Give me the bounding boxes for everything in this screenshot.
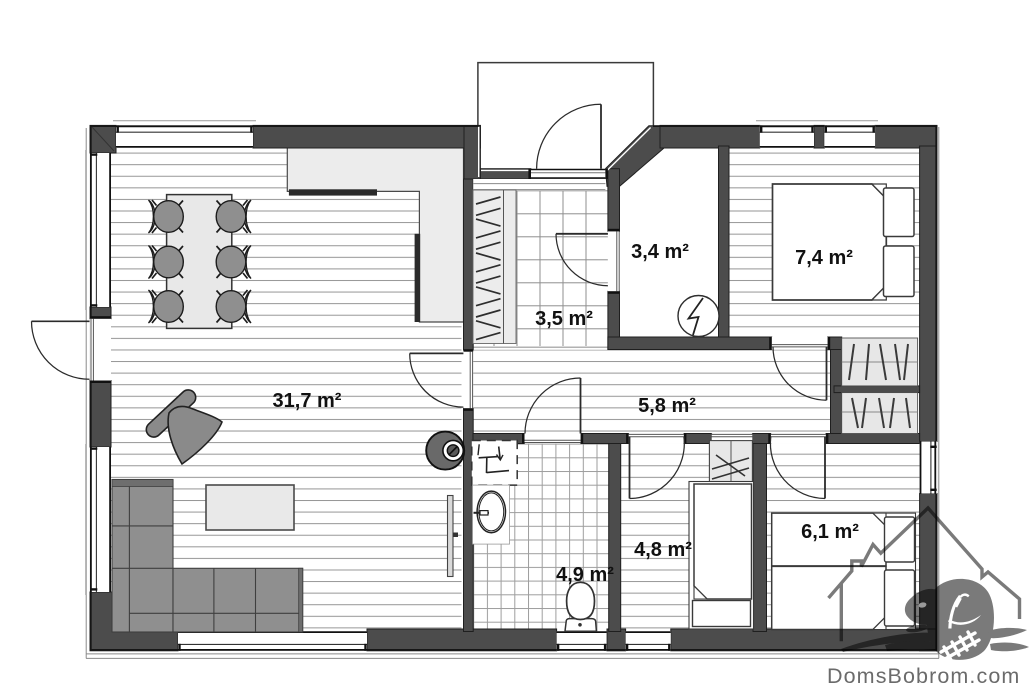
svg-text:4,8 m²: 4,8 m²: [634, 539, 692, 561]
svg-text:4,9 m²: 4,9 m²: [556, 564, 614, 586]
svg-text:3,5 m²: 3,5 m²: [535, 308, 593, 330]
svg-text:3,4 m²: 3,4 m²: [631, 241, 689, 263]
svg-text:31,7 m²: 31,7 m²: [273, 390, 342, 412]
svg-text:DomsBobrom.com: DomsBobrom.com: [827, 664, 1020, 688]
svg-text:6,1 m²: 6,1 m²: [801, 521, 859, 543]
svg-text:7,4 m²: 7,4 m²: [795, 247, 853, 269]
svg-text:5,8 m²: 5,8 m²: [638, 395, 696, 417]
